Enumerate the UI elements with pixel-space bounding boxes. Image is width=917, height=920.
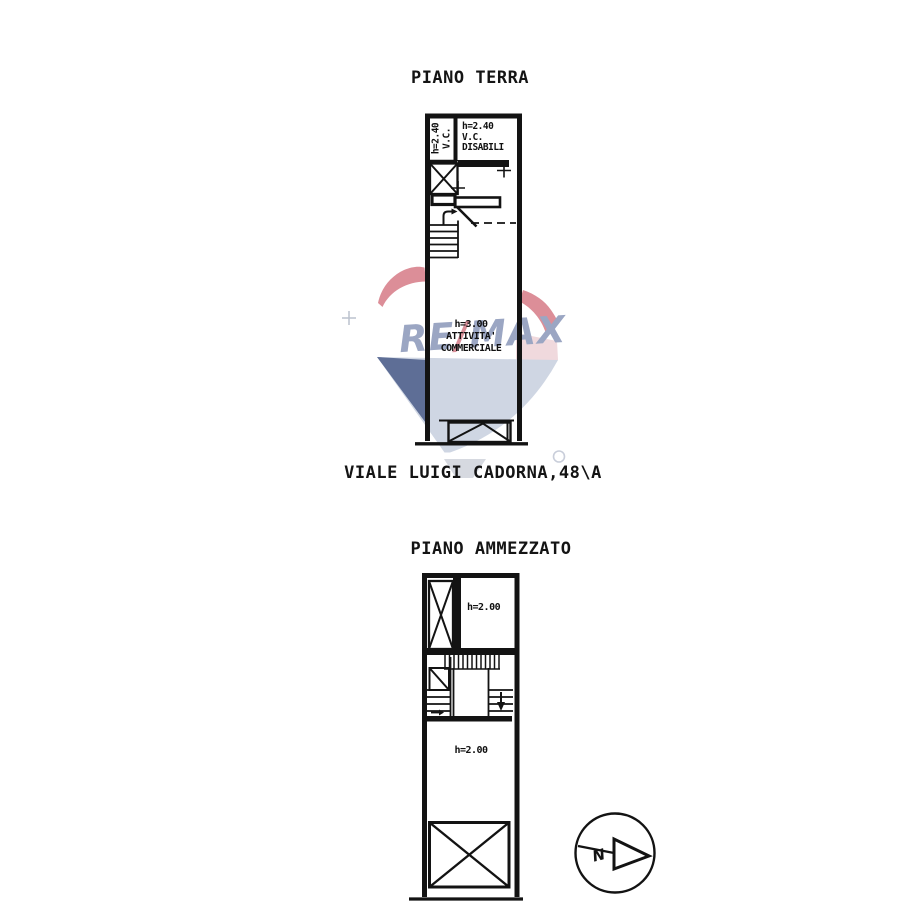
wc-room-label: h=2.40 V.C. [432,121,453,157]
stair-stringers [451,657,489,717]
remax-watermark: RE/MAX [342,267,569,478]
flight-arrow-head [497,702,505,711]
compass-needle-head [614,839,649,869]
stair-treads [430,225,458,258]
stair-arrow-head [452,209,458,215]
commercial-room-label: h=3.00 ATTIVITA' COMMERCIALE [412,319,530,355]
shaft-box-cross [430,164,458,195]
wc-label-line2: V.C. [441,128,452,149]
room-bottom-wall [427,648,515,655]
floor-plan-document: RE/MAX [0,0,917,920]
landing-wall [427,716,512,722]
wc-label-line1: h=2.40 [431,123,442,154]
mezzanine-title: PIANO AMMEZZATO [366,539,616,559]
north-compass-icon: N [576,814,655,893]
mezzanine-floor-plan-drawing [409,576,523,900]
compass-north-label: N [591,845,608,866]
stair-threshold-box [432,195,455,205]
address-label: VIALE LUIGI CADORNA,48\A [323,463,623,483]
plan-drawing-svg: RE/MAX [0,0,917,920]
upper-flight-hatch [444,655,500,669]
landing-bar [455,198,500,208]
under-stair-diagonal [430,668,450,690]
void-box-cross [430,823,510,888]
shaft-box-cross [429,581,453,649]
disabili-line3: DISABILI [462,142,504,153]
ground-floor-title: PIANO TERRA [345,68,595,88]
mezzanine-upper-room-label: h=2.00 [467,603,507,614]
commercial-line3: COMMERCIALE [441,343,502,354]
balloon-bottom-dark-panel [377,357,427,425]
wc-disabili-wall [458,160,510,167]
shaft-right-wall [453,578,461,655]
commercial-line1: h=3.00 [454,319,487,330]
disabili-line2: V.C. [462,132,483,143]
commercial-line2: ATTIVITA' [446,331,496,342]
mezzanine-main-room-label: h=2.00 [412,745,530,757]
cad-point-marker [342,311,356,325]
disabili-line1: h=2.40 [462,121,493,132]
stair-arrow-line [444,212,452,226]
balloon-red-left-lobe [378,267,426,307]
registered-mark-icon [554,451,565,462]
left-flight-treads [427,690,451,711]
wc-disabili-room-label: h=2.40 V.C. DISABILI [462,122,514,154]
